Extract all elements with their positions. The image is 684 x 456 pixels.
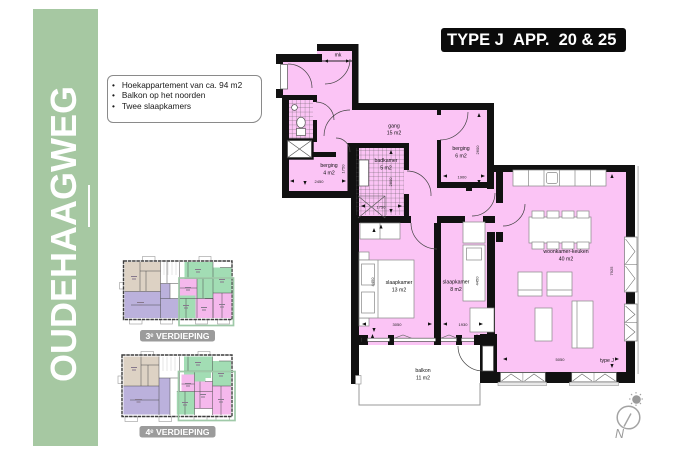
- svg-text:1750: 1750: [341, 164, 346, 174]
- svg-text:11 m2: 11 m2: [416, 376, 430, 382]
- svg-text:1750: 1750: [377, 205, 387, 210]
- svg-text:type J: type J: [600, 358, 614, 364]
- svg-text:slaapkamer: slaapkamer: [386, 280, 413, 286]
- svg-text:balkon: balkon: [415, 368, 430, 374]
- svg-text:2600: 2600: [475, 145, 480, 155]
- svg-text:3ᵉ VERDIEPING: 3ᵉ VERDIEPING: [145, 331, 209, 341]
- svg-text:2450: 2450: [315, 179, 325, 184]
- svg-text:woonkamer-keuken: woonkamer-keuken: [543, 249, 588, 255]
- svg-text:2800: 2800: [388, 177, 393, 187]
- svg-text:15 m2: 15 m2: [387, 131, 402, 137]
- svg-text:5 m2: 5 m2: [380, 166, 392, 172]
- svg-text:1900: 1900: [458, 175, 468, 180]
- svg-text:gang: gang: [388, 124, 400, 130]
- svg-text:8 m2: 8 m2: [450, 287, 462, 293]
- svg-text:4450: 4450: [370, 277, 375, 287]
- svg-text:slaapkamer: slaapkamer: [443, 280, 470, 286]
- svg-text:40 m2: 40 m2: [559, 257, 574, 263]
- svg-text:3050: 3050: [393, 322, 403, 327]
- svg-text:berging: berging: [320, 163, 337, 169]
- svg-text:4450: 4450: [475, 276, 480, 286]
- svg-text:4ᵉ VERDIEPING: 4ᵉ VERDIEPING: [145, 427, 209, 437]
- svg-text:5050: 5050: [556, 357, 566, 362]
- svg-text:1930: 1930: [459, 322, 469, 327]
- svg-text:7925: 7925: [609, 266, 614, 276]
- svg-text:berging: berging: [452, 146, 469, 152]
- svg-text:13 m2: 13 m2: [392, 288, 407, 294]
- svg-text:badkamer: badkamer: [374, 158, 397, 164]
- svg-text:N: N: [615, 427, 625, 441]
- svg-text:mk: mk: [335, 53, 342, 59]
- svg-text:6 m2: 6 m2: [455, 154, 467, 160]
- svg-text:4 m2: 4 m2: [323, 171, 335, 177]
